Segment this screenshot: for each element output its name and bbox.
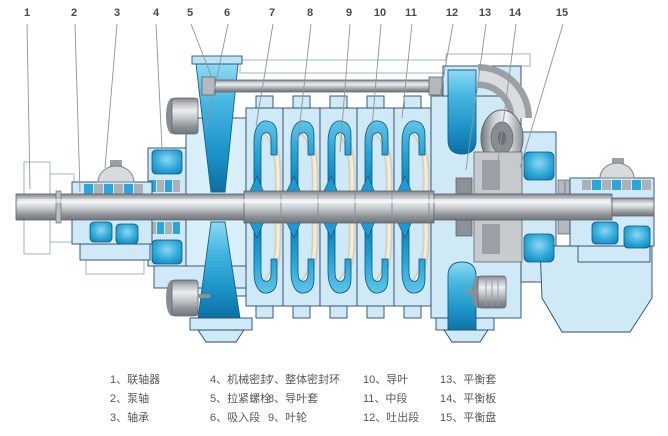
legend-item: 13、平衡套 [440, 371, 496, 390]
callout-number: 4 [153, 7, 159, 19]
callout-number: 12 [446, 7, 458, 19]
legend-item: 4、机械密封 [210, 371, 271, 390]
discharge-top-outline [446, 54, 530, 66]
seal-chamber-top [152, 150, 182, 174]
flush-boss-top [172, 98, 198, 134]
grease-cup-left [98, 166, 134, 182]
callout-number: 6 [224, 7, 230, 19]
callout-number: 3 [114, 7, 120, 19]
flush-boss-stud [198, 294, 210, 298]
legend-item: 12、吐出段 [363, 409, 419, 428]
callout-number: 1 [24, 7, 30, 19]
tie-rod-nut-right [429, 77, 442, 95]
tie-rod [206, 80, 436, 92]
shaft-shoulder [56, 191, 61, 223]
legend-column-2: 4、机械密封 5、拉紧螺栓 6、吸入段 [210, 371, 271, 428]
legend-column-5: 13、平衡套 14、平衡板 15、平衡盘 [440, 371, 496, 428]
left-bearing-base [80, 244, 150, 260]
suction-inlet-rim [192, 56, 242, 64]
callout-number: 10 [374, 7, 386, 19]
legend-item: 1、联轴器 [110, 371, 160, 390]
discharge-foot-pad [444, 330, 488, 342]
right-bearing-ring [624, 226, 650, 248]
callout-number: 7 [269, 7, 275, 19]
flush-boss-bottom [172, 280, 198, 316]
legend-item: 5、拉紧螺栓 [210, 390, 271, 409]
shaft-end-right [612, 198, 654, 216]
drain-stud [466, 290, 478, 294]
tie-rod-nut-left [202, 77, 215, 95]
balance-sleeve-bottom [456, 220, 472, 236]
left-bearing-ring [116, 224, 138, 244]
legend-item: 15、平衡盘 [440, 409, 496, 428]
discharge-channel-top [448, 70, 476, 154]
grease-cup-right [600, 163, 634, 178]
right-bearing-ring [592, 222, 618, 244]
callout-number: 9 [346, 7, 352, 19]
bearing-foot-outline [86, 260, 144, 274]
right-bearing-cap-cells [582, 180, 651, 190]
legend-column-3: 7、整体密封环 8、导叶套 9、叶轮 [268, 371, 340, 428]
callout-number: 14 [509, 7, 521, 19]
legend-item: 6、吸入段 [210, 409, 271, 428]
callout-number: 2 [71, 7, 77, 19]
suction-foot-pad [198, 330, 244, 342]
legend-item: 3、轴承 [110, 409, 160, 428]
parts-legend: 1、联轴器 2、泵轴 3、轴承 4、机械密封 5、拉紧螺栓 6、吸入段 7、整体… [0, 371, 668, 433]
pump-cross-section-figure: 1 2 3 4 5 6 7 8 9 10 11 12 13 14 15 1、联轴… [0, 0, 668, 436]
legend-item: 8、导叶套 [268, 390, 340, 409]
shaft-highlight [18, 199, 610, 203]
discharge-channel-bottom [448, 262, 476, 332]
seal-chamber-bottom [152, 240, 182, 264]
suction-foot [190, 318, 252, 330]
legend-item: 10、导叶 [363, 371, 419, 390]
balance-disc-top [482, 160, 500, 190]
callout-number: 13 [479, 7, 491, 19]
callout-number: 5 [187, 7, 193, 19]
balance-disc-bottom [482, 224, 500, 254]
callout-number: 8 [307, 7, 313, 19]
legend-item: 2、泵轴 [110, 390, 160, 409]
legend-item: 14、平衡板 [440, 390, 496, 409]
legend-item: 11、中段 [363, 390, 419, 409]
callout-number: 15 [556, 7, 568, 19]
shaft-sleeve [244, 191, 434, 223]
legend-column-1: 1、联轴器 2、泵轴 3、轴承 [110, 371, 160, 428]
legend-item: 9、叶轮 [268, 409, 340, 428]
top-cover-outline [240, 60, 446, 73]
pump-shaft [16, 191, 654, 223]
balance-chamber-bottom [524, 234, 554, 262]
legend-column-4: 10、导叶 11、中段 12、吐出段 [363, 371, 419, 428]
left-bearing-ring [90, 222, 112, 242]
callout-number: 11 [405, 7, 417, 19]
balance-sleeve-top [456, 178, 472, 194]
legend-item: 7、整体密封环 [268, 371, 340, 390]
balance-chamber-top [524, 152, 554, 180]
